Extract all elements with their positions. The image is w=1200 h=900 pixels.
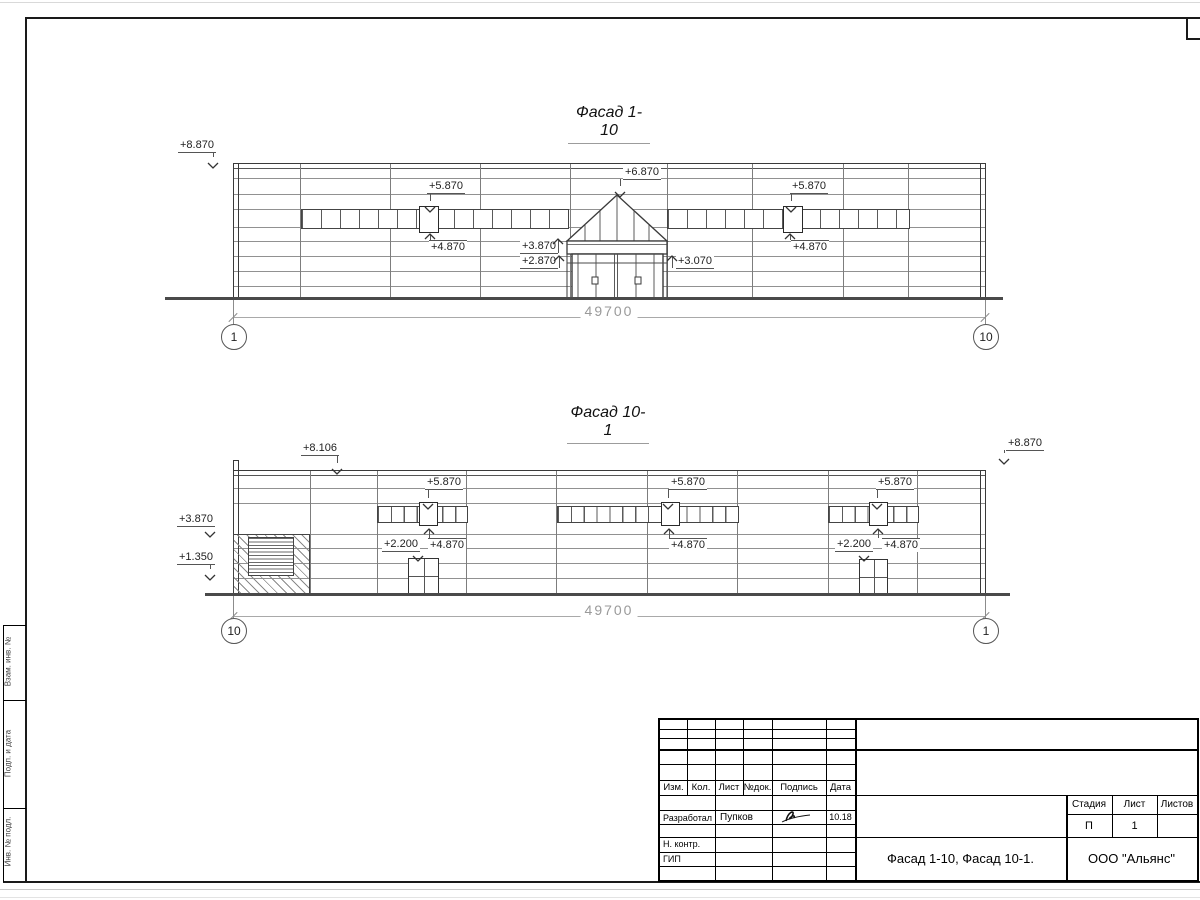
frame-corner-box-v	[1186, 17, 1188, 38]
stamp-col-data: Дата	[826, 780, 855, 795]
margin-label-inv: Инв. № подл.	[4, 807, 13, 877]
dim-tick	[980, 313, 989, 322]
axis-bubble: 1	[973, 618, 999, 644]
leader-line	[213, 152, 214, 157]
marked-window	[869, 502, 888, 526]
entrance-door	[408, 558, 439, 596]
dimension-line	[233, 616, 985, 617]
stamp-sheets-value	[1157, 814, 1197, 837]
stamp-doc-title: Фасад 1-10, Фасад 10-1.	[855, 837, 1066, 880]
axis-leader-line	[233, 596, 234, 618]
frame-top	[25, 17, 1200, 19]
entrance-door	[859, 559, 888, 596]
ground-line	[205, 593, 1010, 596]
dimension-value: 49700	[581, 303, 638, 319]
frame-left	[25, 17, 27, 882]
elevation-arrow-icon	[204, 568, 216, 575]
entrance-canopy	[565, 191, 669, 301]
sheet-top-edge	[0, 2, 1200, 3]
elevation-mark-label: +3.870	[177, 513, 215, 527]
sheet-bottom-edge	[0, 889, 1200, 890]
facade-10-1-view	[233, 470, 986, 594]
axis-bubble: 10	[221, 618, 247, 644]
elevation-mark-label: +8.870	[178, 139, 216, 153]
axis-bubble: 10	[973, 324, 999, 350]
stamp-sheet-label: Лист	[1112, 795, 1157, 814]
frame-corner-box-h	[1186, 38, 1200, 40]
dim-tick	[228, 313, 237, 322]
stamp-col-kol: Кол.	[687, 780, 715, 795]
marked-window	[419, 206, 439, 233]
leader-line	[210, 564, 211, 569]
leader-line	[337, 455, 338, 463]
facade-1-10-title: Фасад 1-10	[568, 104, 650, 144]
facade-10-1-title: Фасад 10-1	[567, 404, 649, 444]
axis-bubble: 1	[221, 324, 247, 350]
window-strip	[557, 506, 739, 523]
elevation-arrow-icon	[207, 156, 219, 163]
parapet-line	[233, 168, 986, 169]
elevation-mark-label: +8.870	[1006, 437, 1044, 451]
elevation-mark-label: +8.106	[301, 442, 339, 456]
stamp-company: ООО "Альянс"	[1066, 837, 1197, 880]
drawing-sheet: Фасад 1-10	[0, 0, 1200, 900]
elevation-arrow-icon	[331, 462, 343, 469]
marked-window	[783, 206, 803, 233]
facade-right-edge	[980, 164, 986, 299]
margin-label-podp: Подп. и дата	[4, 719, 13, 789]
facade-left-edge	[233, 164, 239, 299]
leader-line	[1004, 450, 1005, 453]
stamp-developer-date: 10.18	[826, 810, 855, 824]
dimension-line	[233, 317, 985, 318]
stamp-sheet-value: 1	[1112, 814, 1157, 837]
title-block: Изм. Кол. Лист №док. Подпись Дата Разраб…	[658, 718, 1199, 882]
margin-label-vzam: Взам. инв. №	[4, 627, 13, 697]
dim-tick	[980, 612, 989, 621]
dim-tick	[228, 612, 237, 621]
axis-leader-line	[985, 300, 986, 324]
elevation-arrow-icon	[998, 452, 1010, 459]
stamp-developer-name: Пупков	[720, 812, 753, 823]
signature-icon	[780, 808, 812, 824]
elevation-arrow-icon	[204, 525, 216, 532]
stamp-col-podpis: Подпись	[772, 780, 826, 795]
elevation-mark-label: +1.350	[177, 551, 215, 565]
door-handle-icon	[635, 277, 641, 284]
parapet-line	[233, 475, 986, 476]
stamp-stage-label: Стадия	[1066, 795, 1112, 814]
marked-window	[419, 502, 438, 526]
facade-1-10-view	[233, 163, 986, 299]
stamp-col-ndok: №док.	[743, 780, 772, 795]
stamp-ncontr-label: Н. контр.	[663, 839, 700, 849]
marked-window	[661, 502, 680, 526]
louver-grille	[248, 537, 294, 576]
stamp-gip-label: ГИП	[663, 854, 681, 864]
stamp-col-izm: Изм.	[660, 780, 687, 795]
stamp-sheets-label: Листов	[1157, 795, 1197, 814]
dimension-value: 49700	[581, 602, 638, 618]
facade-right-edge	[980, 471, 986, 594]
stamp-col-list: Лист	[715, 780, 743, 795]
stamp-stage-value: П	[1066, 814, 1112, 837]
margin-strip: Взам. инв. № Подп. и дата Инв. № подл.	[3, 625, 25, 882]
ground-line	[165, 297, 1003, 300]
axis-leader-line	[985, 596, 986, 618]
axis-leader-line	[233, 300, 234, 324]
sheet-bottom-shadow	[0, 897, 1200, 898]
stamp-developer-role: Разработал	[663, 813, 712, 823]
door-handle-icon	[592, 277, 598, 284]
